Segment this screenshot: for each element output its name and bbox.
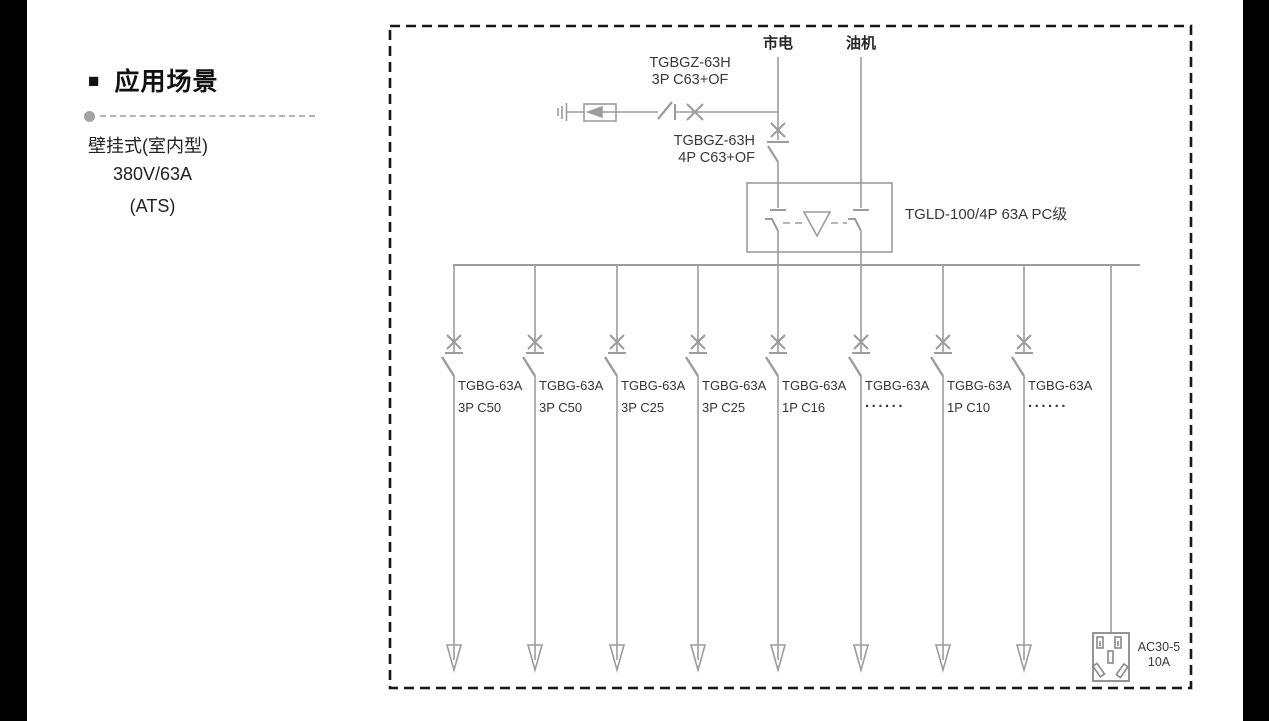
branch-line	[931, 265, 952, 670]
branch-model-label: TGBG-63A	[702, 377, 766, 394]
socket-branch	[1093, 265, 1129, 681]
ats-interlock-triangle-icon	[804, 212, 830, 236]
breaker-4p-spec: 4P C63+OF	[678, 150, 755, 166]
branch-model-label: TGBG-63A	[865, 377, 929, 394]
branch-spec-label: 3P C25	[621, 399, 664, 416]
diagram-dashed-border	[390, 26, 1191, 688]
branch-line	[605, 265, 626, 670]
spd-branch	[558, 102, 778, 121]
incoming-breaker-4p-label: TGBGZ-63H4P C63+OF	[643, 133, 755, 167]
branch-model-label: TGBG-63A	[539, 377, 603, 394]
breaker-4p-model: TGBGZ-63H	[674, 133, 755, 149]
branch-feeders	[442, 265, 1033, 670]
incoming-breaker-3p-label: TGBGZ-63H3P C63+OF	[634, 55, 746, 89]
branch-model-label: TGBG-63A	[621, 377, 685, 394]
ats-label: TGLD-100/4P 63A PC级	[905, 206, 1067, 223]
breaker-3p-model: TGBGZ-63H	[649, 55, 730, 71]
branch-spec-label: 1P C10	[947, 399, 990, 416]
branch-model-label: TGBG-63A	[458, 377, 522, 394]
branch-model-label: TGBG-63A	[947, 377, 1011, 394]
branch-line	[442, 265, 463, 670]
generator-label: 油机	[839, 35, 883, 52]
branch-spec-label: ......	[865, 394, 905, 411]
spd-arrow-icon	[588, 107, 602, 117]
ats-switch-box	[747, 183, 892, 265]
single-line-diagram-canvas	[0, 0, 1269, 721]
branch-model-label: TGBG-63A	[782, 377, 846, 394]
socket-rating-label: 10A	[1132, 654, 1186, 671]
branch-model-label: TGBG-63A	[1028, 377, 1092, 394]
branch-spec-label: 3P C50	[539, 399, 582, 416]
branch-line	[523, 265, 544, 670]
branch-spec-label: 1P C16	[782, 399, 825, 416]
wiring-lines	[442, 57, 1140, 681]
mains-label: 市电	[756, 35, 800, 52]
branch-line	[686, 265, 707, 670]
branch-line	[849, 265, 870, 670]
mains-feeder-line	[767, 57, 789, 183]
branch-line	[1012, 265, 1033, 670]
branch-spec-label: 3P C50	[458, 399, 501, 416]
branch-spec-label: ......	[1028, 394, 1068, 411]
branch-spec-label: 3P C25	[702, 399, 745, 416]
breaker-3p-spec: 3P C63+OF	[652, 72, 729, 88]
branch-line	[766, 265, 787, 670]
